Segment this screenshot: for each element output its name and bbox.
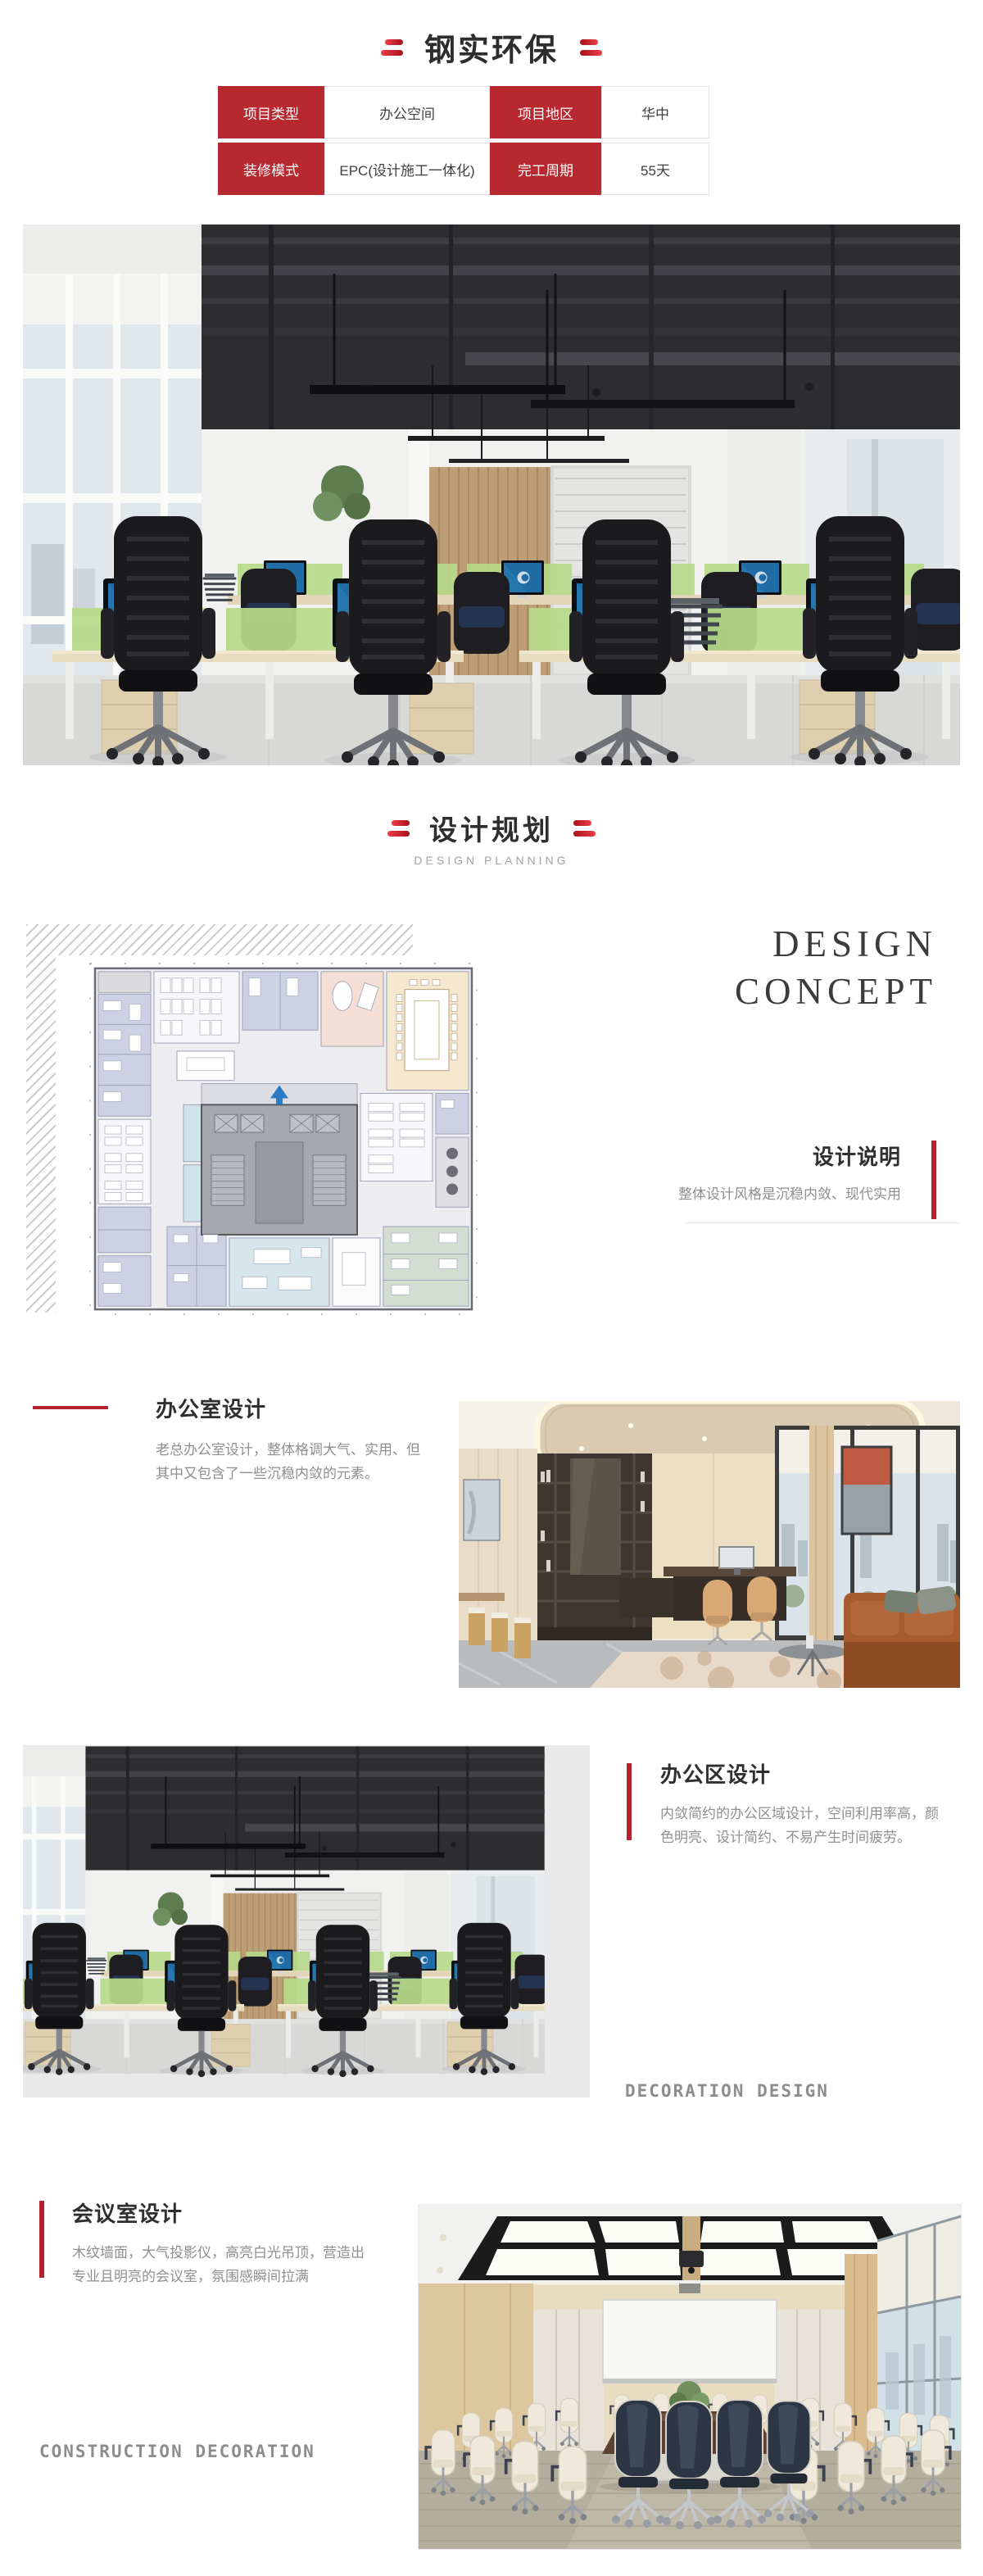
divider-line xyxy=(685,1222,960,1223)
cell-mode-value: EPC(设计施工一体化) xyxy=(324,143,490,195)
office-room-title: 办公室设计 xyxy=(156,1393,266,1423)
executive-office-illustration xyxy=(459,1401,960,1688)
open-office-illustration xyxy=(23,224,960,765)
page-header: 钢实环保 xyxy=(0,25,983,70)
cell-project-region-label: 项目地区 xyxy=(490,86,601,138)
meeting-room-title: 会议室设计 xyxy=(72,2197,183,2228)
floor-plan xyxy=(79,955,488,1321)
hero-office-photo xyxy=(23,224,960,765)
cell-duration-label: 完工周期 xyxy=(490,143,601,195)
hatch-band-left xyxy=(26,955,56,1313)
cell-project-region-value: 华中 xyxy=(601,86,709,138)
meeting-room-illustration xyxy=(419,2205,961,2549)
cell-project-type-value: 办公空间 xyxy=(324,86,490,138)
table-row: 项目类型 办公空间 项目地区 华中 xyxy=(218,86,709,138)
red-equals-mark-right xyxy=(573,820,596,837)
office-area-desc: 内敛简约的办公区域设计，空间利用率高，颜色明亮、设计简约、不易产生时间疲劳。 xyxy=(660,1803,945,1850)
design-note-desc: 整体设计风格是沉稳内敛、现代实用 xyxy=(678,1183,901,1207)
design-note-title: 设计说明 xyxy=(813,1141,901,1171)
construction-decoration-watermark: CONSTRUCTION DECORATION xyxy=(39,2442,315,2461)
red-equals-mark-left xyxy=(387,820,410,837)
cell-mode-label: 装修模式 xyxy=(218,143,324,195)
red-equals-mark-left xyxy=(381,39,403,56)
red-equals-mark-right xyxy=(580,39,602,56)
design-concept-line2: CONCEPT xyxy=(735,968,937,1016)
cell-duration-value: 55天 xyxy=(601,143,709,195)
office-area-title: 办公区设计 xyxy=(660,1758,771,1789)
red-vertical-bar xyxy=(627,1763,632,1840)
project-info-table: 项目类型 办公空间 项目地区 华中 装修模式 EPC(设计施工一体化) 完工周期… xyxy=(218,86,709,199)
floor-plan-illustration xyxy=(79,955,488,1321)
red-vertical-bar xyxy=(39,2201,44,2278)
red-vertical-bar xyxy=(931,1141,936,1219)
office-room-desc: 老总办公室设计，整体格调大气、实用、但其中又包含了一些沉稳内敛的元素。 xyxy=(156,1439,428,1486)
decoration-design-watermark: DECORATION DESIGN xyxy=(625,2081,829,2101)
planning-subtitle: DESIGN PLANNING xyxy=(0,854,983,867)
project-page: 钢实环保 项目类型 办公空间 项目地区 华中 装修模式 EPC(设计施工一体化)… xyxy=(0,0,983,2576)
meeting-room-desc: 木纹墙面，大气投影仪，高亮白光吊顶，营造出专业且明亮的会议室，氛围感瞬间拉满 xyxy=(72,2242,370,2289)
meeting-room-photo xyxy=(418,2204,962,2550)
table-row: 装修模式 EPC(设计施工一体化) 完工周期 55天 xyxy=(218,143,709,195)
hatch-band-top xyxy=(26,924,413,955)
executive-office-photo xyxy=(459,1401,960,1688)
design-concept-heading: DESIGN CONCEPT xyxy=(735,921,937,1015)
design-concept-line1: DESIGN xyxy=(735,921,937,968)
planning-title: 设计规划 xyxy=(429,808,554,848)
cell-project-type-label: 项目类型 xyxy=(218,86,324,138)
section-header-planning: 设计规划 DESIGN PLANNING xyxy=(0,808,983,867)
page-title: 钢实环保 xyxy=(424,25,559,70)
open-office-illustration xyxy=(23,1745,590,2098)
red-horizontal-rule xyxy=(33,1406,108,1409)
office-area-photo xyxy=(23,1745,590,2098)
